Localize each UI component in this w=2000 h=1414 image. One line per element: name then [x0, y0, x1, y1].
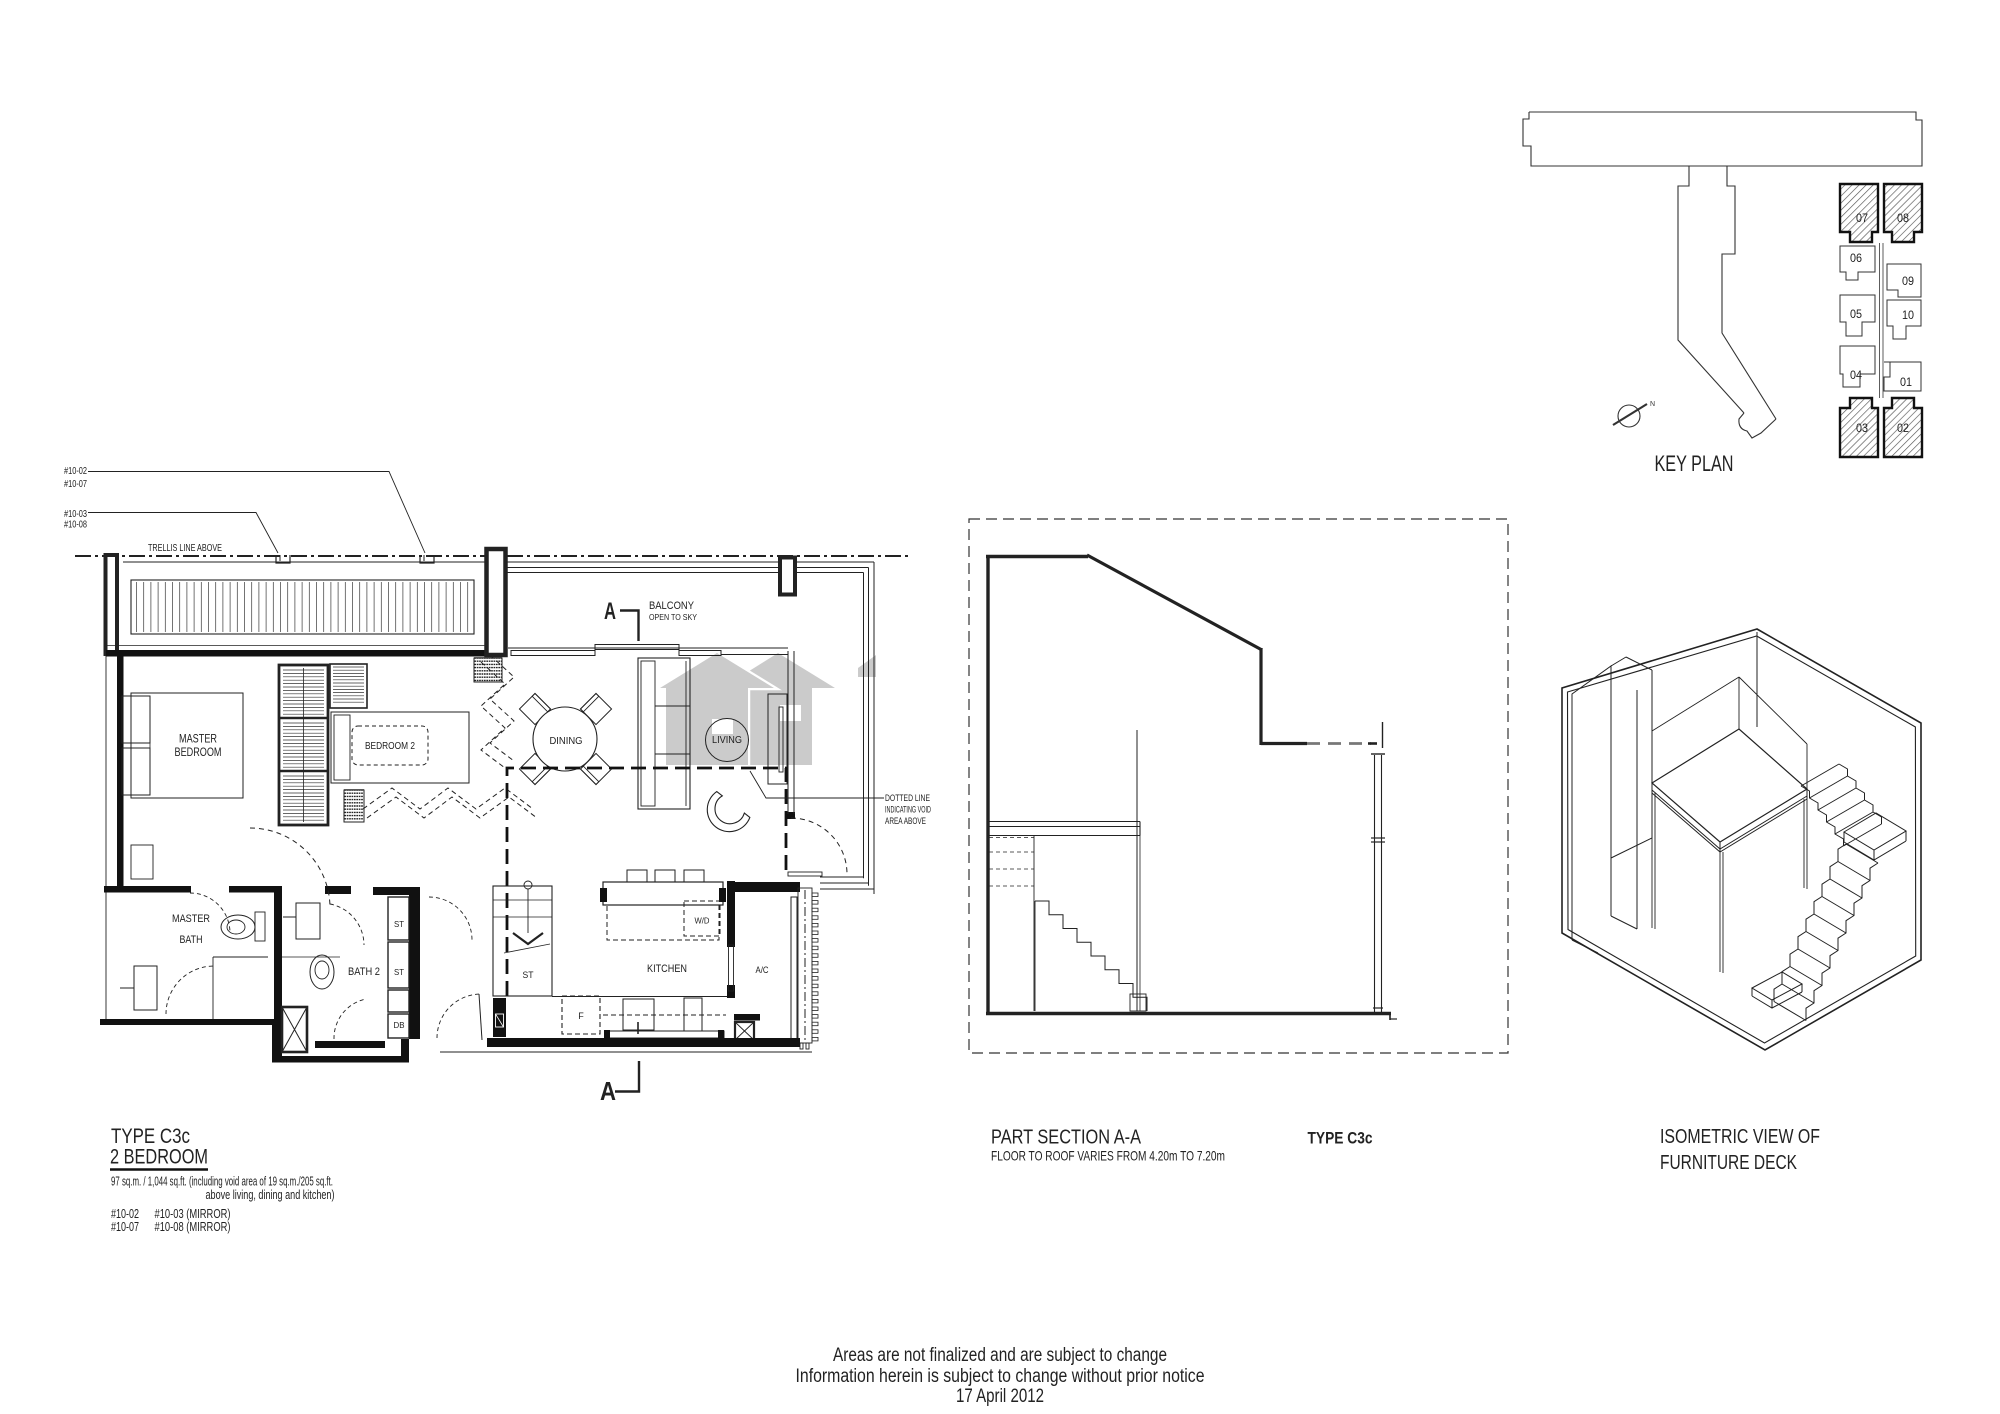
- svg-text:BATH: BATH: [180, 934, 203, 946]
- svg-text:MASTER: MASTER: [179, 734, 217, 746]
- svg-text:PART SECTION A-A: PART SECTION A-A: [991, 1127, 1142, 1149]
- svg-text:#10-02: #10-02: [111, 1207, 139, 1221]
- svg-text:INDICATING VOID: INDICATING VOID: [885, 805, 931, 816]
- svg-text:02: 02: [1897, 421, 1909, 435]
- svg-text:DINING: DINING: [550, 735, 583, 747]
- svg-text:A: A: [600, 1076, 616, 1106]
- svg-text:BALCONY: BALCONY: [649, 600, 695, 612]
- svg-text:A: A: [604, 598, 616, 625]
- svg-text:04: 04: [1850, 368, 1862, 382]
- svg-text:05: 05: [1850, 307, 1862, 321]
- svg-text:A/C: A/C: [756, 965, 769, 975]
- svg-text:97 sq.m. / 1,044 sq.ft. (incl: 97 sq.m. / 1,044 sq.ft. (including void …: [111, 1175, 333, 1189]
- svg-text:OPEN TO SKY: OPEN TO SKY: [649, 612, 697, 622]
- svg-text:#10-03 (MIRROR): #10-03 (MIRROR): [155, 1207, 231, 1221]
- svg-text:BEDROOM: BEDROOM: [175, 747, 222, 759]
- svg-text:01: 01: [1900, 375, 1912, 389]
- svg-text:BEDROOM 2: BEDROOM 2: [365, 740, 415, 752]
- svg-text:F: F: [578, 1011, 584, 1021]
- svg-text:FLOOR TO ROOF VARIES FROM 4.2: FLOOR TO ROOF VARIES FROM 4.20m TO 7.20m: [991, 1148, 1225, 1164]
- svg-text:#10-08 (MIRROR): #10-08 (MIRROR): [155, 1220, 231, 1234]
- svg-text:#10-02: #10-02: [64, 466, 87, 477]
- svg-text:KITCHEN: KITCHEN: [647, 963, 687, 975]
- svg-text:Areas are not finalized and ar: Areas are not finalized and are subject …: [833, 1345, 1167, 1366]
- svg-text:MASTER: MASTER: [172, 913, 210, 925]
- svg-text:#10-08: #10-08: [64, 520, 87, 531]
- svg-text:above living, dining and kitch: above living, dining and kitchen): [206, 1188, 335, 1202]
- svg-text:#10-07: #10-07: [64, 479, 87, 490]
- svg-text:#10-07: #10-07: [111, 1220, 139, 1234]
- svg-text:LIVING: LIVING: [712, 734, 742, 746]
- svg-text:ST: ST: [394, 919, 404, 929]
- svg-text:ST: ST: [394, 967, 404, 977]
- svg-text:N: N: [1650, 401, 1655, 408]
- svg-text:DB: DB: [394, 1020, 405, 1030]
- svg-text:#10-03: #10-03: [64, 509, 87, 520]
- svg-text:07: 07: [1856, 211, 1868, 225]
- svg-text:03: 03: [1856, 421, 1868, 435]
- svg-text:09: 09: [1902, 274, 1914, 288]
- svg-text:10: 10: [1902, 308, 1914, 322]
- svg-text:AREA ABOVE: AREA ABOVE: [885, 816, 926, 827]
- svg-text:TRELLIS LINE ABOVE: TRELLIS LINE ABOVE: [148, 542, 222, 554]
- svg-text:TYPE C3c: TYPE C3c: [1308, 1129, 1373, 1148]
- svg-text:FURNITURE DECK: FURNITURE DECK: [1660, 1152, 1798, 1174]
- svg-text:BATH 2: BATH 2: [348, 966, 380, 978]
- svg-text:DOTTED LINE: DOTTED LINE: [885, 793, 930, 804]
- svg-text:Information herein is subject: Information herein is subject to change …: [796, 1366, 1205, 1387]
- svg-text:W/D: W/D: [695, 917, 710, 926]
- svg-text:08: 08: [1897, 211, 1909, 225]
- svg-text:17 April 2012: 17 April 2012: [956, 1386, 1044, 1407]
- svg-text:06: 06: [1850, 251, 1862, 265]
- svg-text:ISOMETRIC VIEW OF: ISOMETRIC VIEW OF: [1660, 1126, 1820, 1148]
- svg-text:KEY PLAN: KEY PLAN: [1655, 451, 1734, 476]
- svg-text:ST: ST: [523, 970, 534, 980]
- svg-text:2 BEDROOM: 2 BEDROOM: [110, 1146, 208, 1169]
